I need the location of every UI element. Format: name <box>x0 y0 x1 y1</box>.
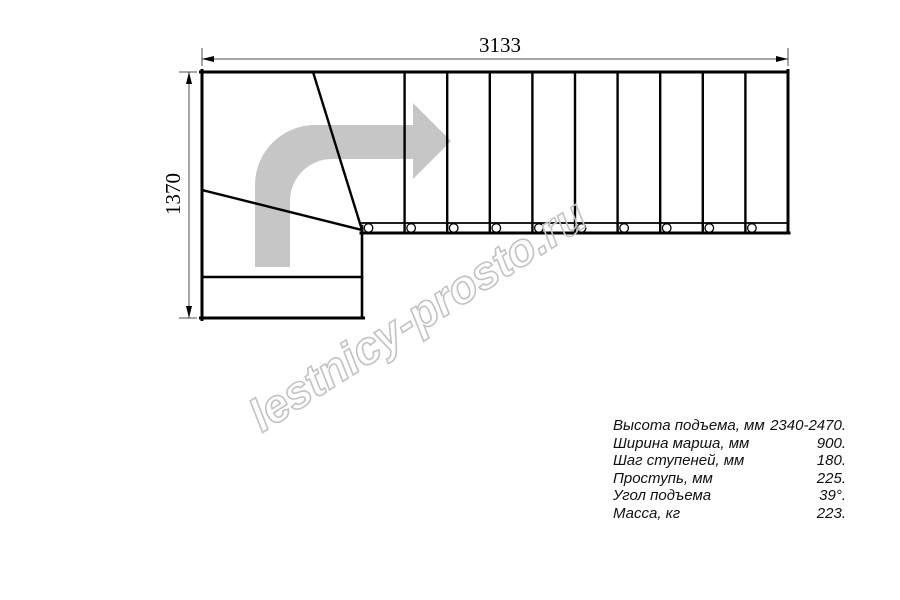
spec-value: 39°. <box>819 487 846 505</box>
turn-arrow-icon <box>255 103 451 267</box>
baluster-circle <box>620 224 629 233</box>
baluster-circle <box>449 224 458 233</box>
spec-row: Угол подъема 39°. <box>613 487 846 505</box>
spec-label: Ширина марша, мм <box>613 435 749 453</box>
baluster-circle <box>705 224 714 233</box>
direction-arrow <box>255 103 451 267</box>
spec-label: Масса, кг <box>613 505 680 523</box>
spec-label: Шаг ступеней, мм <box>613 452 744 470</box>
spec-value: 225. <box>817 470 846 488</box>
spec-value: 900. <box>817 435 846 453</box>
dimension-width: 3133 <box>202 33 788 66</box>
spec-row: Масса, кг 223. <box>613 505 846 523</box>
dimension-arrow-down <box>186 306 192 318</box>
baluster-circle <box>748 224 757 233</box>
watermark-text: lestnicy-prosto.ru <box>239 189 595 442</box>
dimension-arrow-right <box>776 56 788 62</box>
spec-value: 180. <box>817 452 846 470</box>
baluster-circle <box>662 224 671 233</box>
specs-table: Высота подъема, мм 2340-2470. Ширина мар… <box>613 417 846 523</box>
spec-value: 2340-2470. <box>770 417 846 435</box>
dimension-arrow-up <box>186 72 192 84</box>
spec-row: Шаг ступеней, мм 180. <box>613 452 846 470</box>
spec-row: Высота подъема, мм 2340-2470. <box>613 417 846 435</box>
dimension-height: 1370 <box>161 72 197 318</box>
spec-value: 223. <box>817 505 846 523</box>
baluster-circle <box>364 224 373 233</box>
stair-drawing-page: 3133 1370 lestnicy-prosto.ru Высота подъ… <box>0 0 900 600</box>
spec-label: Проступь, мм <box>613 470 713 488</box>
spec-row: Ширина марша, мм 900. <box>613 435 846 453</box>
spec-row: Проступь, мм 225. <box>613 470 846 488</box>
spec-label: Высота подъема, мм <box>613 417 765 435</box>
baluster-circle <box>407 224 416 233</box>
dimension-arrow-left <box>202 56 214 62</box>
dimension-height-label: 1370 <box>161 173 185 215</box>
spec-label: Угол подъема <box>613 487 711 505</box>
dimension-width-label: 3133 <box>479 33 521 57</box>
